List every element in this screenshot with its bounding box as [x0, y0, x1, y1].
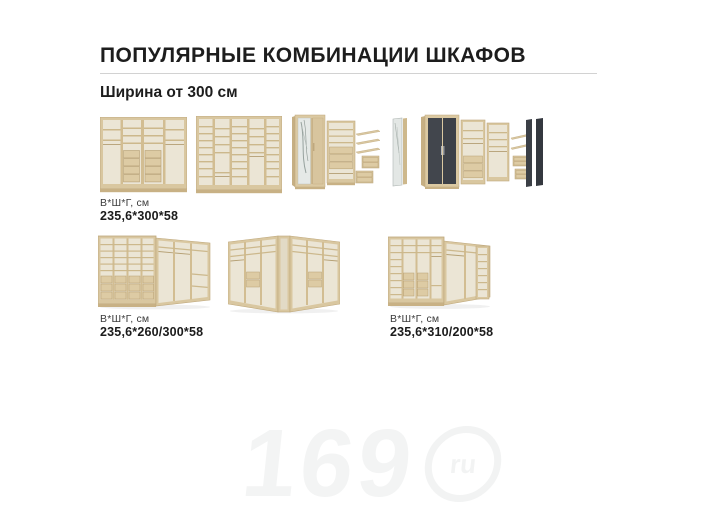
product-wardrobe-dark-combo[interactable]	[421, 112, 545, 192]
watermark-digits: 169	[238, 421, 419, 507]
wardrobe-dark-combo-image	[421, 112, 545, 192]
product-wardrobe-mirror-combo[interactable]	[292, 113, 410, 193]
product-wardrobe-straight-300[interactable]	[100, 117, 187, 193]
corner-wardrobe-2-image	[228, 234, 340, 314]
dims-label-row1: В*Ш*Г, см 235,6*300*58	[100, 197, 178, 223]
product-corner-wardrobe-260-300[interactable]	[98, 234, 212, 310]
product-wardrobe-shelving-300[interactable]	[196, 116, 282, 194]
wardrobe-straight-image	[100, 117, 187, 193]
catalog-page: ПОПУЛЯРНЫЕ КОМБИНАЦИИ ШКАФОВ Ширина от 3…	[0, 0, 702, 523]
product-corner-wardrobe-2[interactable]	[228, 234, 340, 314]
corner-wardrobe-3-image	[388, 235, 492, 309]
wardrobe-shelving-image	[196, 116, 282, 194]
dims-value: 235,6*300*58	[100, 209, 178, 223]
product-corner-wardrobe-310-200[interactable]	[388, 235, 492, 309]
dims-label-row2-left: В*Ш*Г, см 235,6*260/300*58	[100, 313, 203, 339]
watermark-ru-text: ru	[449, 449, 478, 480]
dims-caption: В*Ш*Г, см	[100, 313, 203, 325]
dims-value: 235,6*260/300*58	[100, 325, 203, 339]
wardrobe-mirror-combo-image	[292, 113, 410, 193]
section-subtitle: Ширина от 300 см	[100, 84, 238, 102]
watermark-169ru-logo: 169 ru	[238, 418, 468, 510]
watermark-ru-circle: ru	[421, 426, 505, 502]
page-title: ПОПУЛЯРНЫЕ КОМБИНАЦИИ ШКАФОВ	[100, 44, 526, 68]
dims-caption: В*Ш*Г, см	[100, 197, 178, 209]
dims-caption: В*Ш*Г, см	[390, 313, 493, 325]
corner-wardrobe-1-image	[98, 234, 212, 310]
title-divider	[100, 73, 597, 74]
dims-label-row2-right: В*Ш*Г, см 235,6*310/200*58	[390, 313, 493, 339]
dims-value: 235,6*310/200*58	[390, 325, 493, 339]
